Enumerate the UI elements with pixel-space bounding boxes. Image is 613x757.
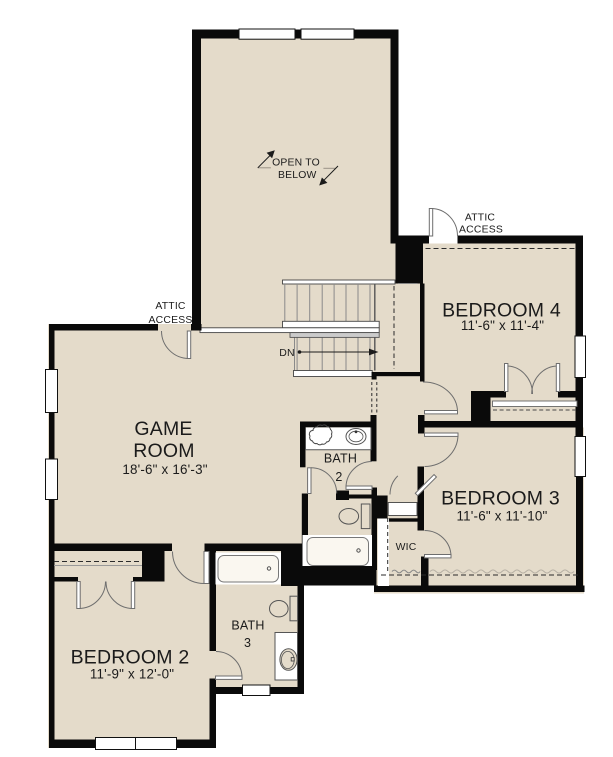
svg-text:OPEN TO: OPEN TO — [272, 157, 320, 168]
svg-text:BATH: BATH — [231, 619, 264, 633]
svg-text:BATH: BATH — [324, 452, 357, 466]
svg-text:ROOM: ROOM — [133, 440, 194, 462]
svg-text:11'-6" x 11'-10": 11'-6" x 11'-10" — [456, 509, 547, 524]
svg-text:18'-6" x 16'-3": 18'-6" x 16'-3" — [122, 462, 207, 477]
svg-text:ACCESS: ACCESS — [149, 315, 193, 326]
svg-text:ACCESS: ACCESS — [459, 225, 503, 236]
svg-text:2: 2 — [335, 470, 342, 484]
svg-text:3: 3 — [244, 636, 251, 650]
svg-text:DN: DN — [279, 347, 295, 359]
svg-text:ATTIC: ATTIC — [465, 213, 496, 224]
svg-text:WIC: WIC — [396, 542, 417, 553]
svg-text:BEDROOM 2: BEDROOM 2 — [71, 647, 190, 669]
svg-text:BELOW: BELOW — [278, 170, 317, 181]
svg-text:11'-9" x 12'-0": 11'-9" x 12'-0" — [90, 667, 174, 682]
svg-text:BEDROOM 3: BEDROOM 3 — [441, 488, 560, 510]
svg-text:GAME: GAME — [134, 418, 192, 440]
svg-text:11'-6" x 11'-4": 11'-6" x 11'-4" — [461, 318, 544, 333]
svg-text:ATTIC: ATTIC — [155, 301, 186, 312]
